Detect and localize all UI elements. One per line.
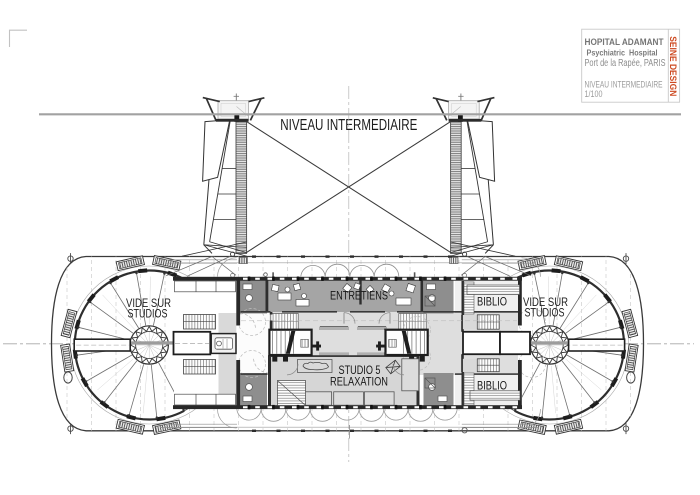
svg-text:STUDIOS: STUDIOS	[128, 308, 168, 321]
svg-text:Port de la Rapée, PARIS: Port de la Rapée, PARIS	[585, 58, 666, 69]
svg-text:BIBLIO: BIBLIO	[477, 380, 507, 393]
svg-text:ENTRETIENS: ENTRETIENS	[330, 290, 388, 303]
svg-text:SEINE DESIGN: SEINE DESIGN	[668, 36, 678, 96]
svg-text:BIBLIO: BIBLIO	[477, 296, 507, 309]
svg-text:NIVEAU INTERMEDIAIRE: NIVEAU INTERMEDIAIRE	[585, 78, 663, 89]
svg-text:Psychiatric Hospital: Psychiatric Hospital	[587, 48, 658, 58]
svg-text:RELAXATION: RELAXATION	[330, 375, 388, 389]
svg-text:HOPITAL ADAMANT: HOPITAL ADAMANT	[585, 37, 664, 48]
svg-text:STUDIOS: STUDIOS	[525, 307, 565, 320]
svg-text:1/100: 1/100	[585, 89, 603, 100]
